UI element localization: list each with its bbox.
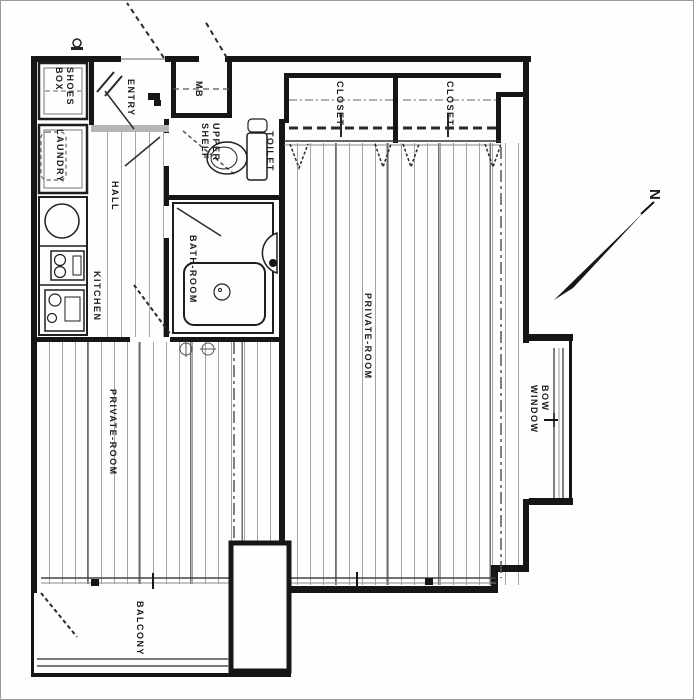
meter-box-door-swing-line bbox=[205, 21, 227, 58]
bow-window-outer-edge bbox=[569, 334, 572, 505]
closet1-label: CLOSET bbox=[334, 81, 345, 127]
left-sliding-door-handle bbox=[91, 579, 99, 586]
stove-burner-2 bbox=[55, 267, 66, 278]
closet1-left-wall bbox=[284, 73, 289, 123]
private-room-right-label: PRIVATE-ROOM bbox=[362, 293, 373, 380]
private-room-left-label: PRIVATE-ROOM bbox=[107, 389, 118, 476]
closet2-right-wall bbox=[496, 92, 501, 143]
closet1-bifold-door-left bbox=[290, 144, 308, 168]
kitchen-fixture-knob-2 bbox=[48, 314, 57, 323]
north-arrow-tip-line bbox=[641, 202, 654, 214]
north-arrow-wedge bbox=[554, 212, 644, 300]
meter-box-bottom-wall bbox=[171, 113, 232, 118]
toilet-label: TOILET bbox=[264, 131, 275, 172]
closet1-top-wall bbox=[284, 73, 398, 78]
closet2-bifold-door-right bbox=[485, 144, 501, 167]
bow-window-bottom-wall bbox=[529, 498, 573, 505]
balcony-bottom-edge bbox=[31, 673, 291, 677]
structural-column bbox=[231, 543, 289, 671]
kitchen-fixture-panel bbox=[65, 297, 80, 321]
closet2-label: CLOSET bbox=[444, 81, 455, 127]
bottom-wall bbox=[284, 586, 498, 593]
toilet-bath-wall bbox=[164, 195, 284, 200]
bathroom-label: BATH-ROOM bbox=[187, 235, 198, 304]
bathroom-door-opening bbox=[164, 206, 169, 238]
doorbell-base bbox=[71, 47, 83, 50]
plan-linework bbox=[1, 1, 694, 700]
room-divider-wall bbox=[279, 119, 285, 586]
closet-divider-wall bbox=[393, 73, 398, 143]
stove-panel bbox=[73, 256, 81, 275]
closet2-bifold-door-left bbox=[403, 144, 419, 167]
balcony-label: BALCONY bbox=[134, 601, 145, 656]
bow-window-top-wall bbox=[529, 334, 573, 341]
right-wall-lower bbox=[523, 499, 529, 571]
north-arrow bbox=[554, 202, 654, 300]
shoes-box-label: SHOES BOX bbox=[53, 67, 75, 106]
entry-label: ENTRY bbox=[125, 79, 136, 117]
kitchen-label: KITCHEN bbox=[91, 271, 102, 322]
entry-step bbox=[91, 125, 169, 132]
bath-basin bbox=[262, 233, 277, 273]
doorbell-dome bbox=[73, 39, 81, 47]
entry-door-swing-line bbox=[127, 3, 164, 58]
entry-side-wall bbox=[89, 56, 94, 125]
right-wall-upper bbox=[523, 56, 529, 343]
entry-door-stop-mark-2 bbox=[154, 100, 161, 106]
bathtub-drain-dot bbox=[219, 289, 222, 292]
bathroom-door-line bbox=[177, 208, 221, 236]
toilet-door-opening bbox=[164, 133, 169, 166]
meter-box-label: MB bbox=[193, 81, 204, 98]
right-sliding-door-handle bbox=[425, 578, 433, 585]
left-wall bbox=[31, 56, 37, 593]
balcony-left-wall bbox=[31, 593, 34, 677]
north-label: N bbox=[649, 189, 660, 200]
hall-label: HALL bbox=[109, 181, 120, 211]
bath-basin-faucet bbox=[269, 259, 277, 267]
toilet-door-line bbox=[125, 137, 160, 166]
kitchen-sink bbox=[45, 204, 79, 238]
kitchen-fixture-knob-1 bbox=[49, 294, 61, 306]
closet2-top-wall bbox=[398, 73, 501, 78]
entry-door-stop-mark bbox=[148, 93, 160, 100]
meter-box-opening bbox=[199, 56, 225, 62]
doorbell-icon bbox=[71, 39, 83, 50]
laundry-label: LAUNDRY bbox=[54, 129, 65, 183]
top-wall bbox=[31, 56, 531, 62]
upper-shelf-label: UPPER SHELF bbox=[199, 123, 221, 162]
left-room-door-opening bbox=[130, 337, 170, 342]
balcony-partition-line bbox=[41, 593, 77, 637]
closet1-bifold-door-right bbox=[375, 144, 391, 167]
stove-burner-1 bbox=[55, 255, 66, 266]
bathtub-drain bbox=[214, 284, 230, 300]
bow-window-label: BOW WINDOW bbox=[528, 385, 550, 434]
floor-plan: SHOES BOX ENTRY MB LAUNDRY HALL KITCHEN … bbox=[0, 0, 694, 700]
